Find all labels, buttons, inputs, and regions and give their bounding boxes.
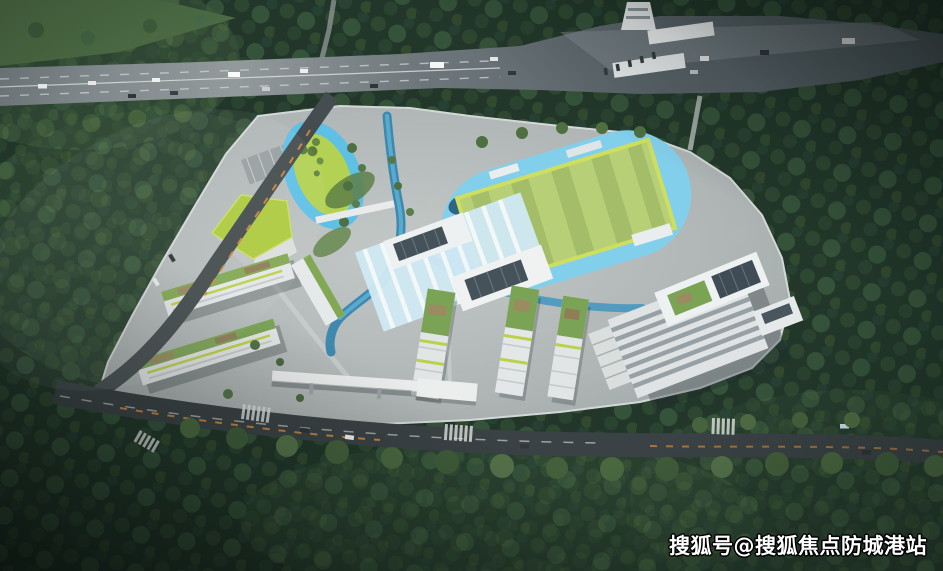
watermark-text: 搜狐号@搜狐焦点防城港站 bbox=[669, 534, 927, 559]
aerial-render: 搜狐号@搜狐焦点防城港站 bbox=[0, 0, 943, 571]
scene-canvas bbox=[0, 0, 943, 571]
lighting-overlays bbox=[0, 0, 943, 571]
